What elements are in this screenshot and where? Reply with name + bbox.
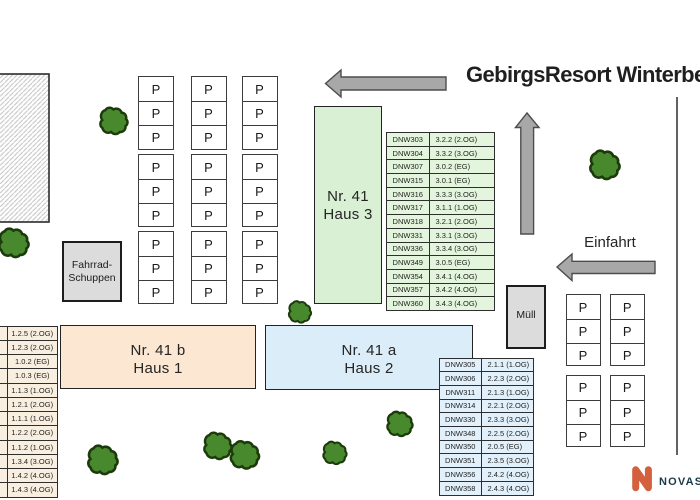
svg-text:NOVASOL: NOVASOL [659, 476, 700, 488]
